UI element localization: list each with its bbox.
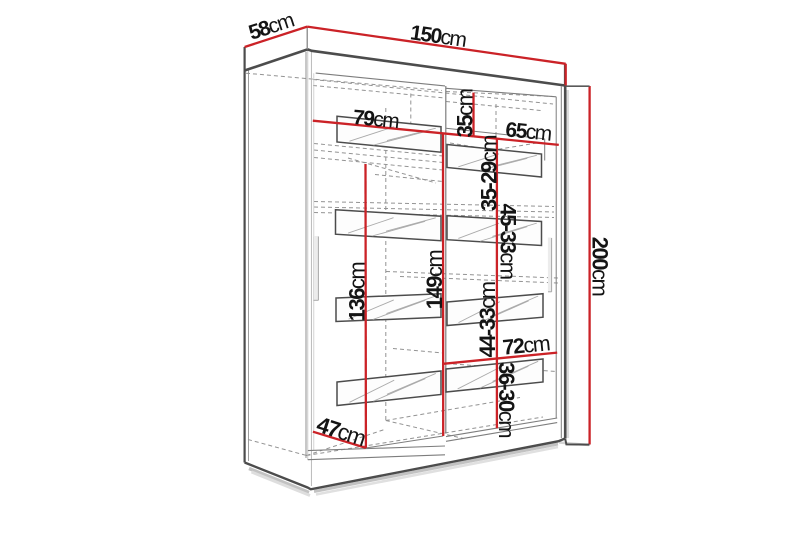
svg-text:47cm: 47cm [314, 412, 369, 451]
svg-text:150cm: 150cm [409, 21, 468, 52]
svg-text:35-29cm: 35-29cm [476, 136, 501, 211]
svg-text:36-30cm: 36-30cm [494, 362, 519, 437]
svg-text:79cm: 79cm [352, 106, 400, 133]
svg-text:149cm: 149cm [422, 251, 447, 310]
svg-text:35cm: 35cm [453, 89, 478, 137]
svg-text:72cm: 72cm [501, 331, 550, 359]
svg-text:200cm: 200cm [587, 237, 612, 296]
svg-text:45-33cm: 45-33cm [496, 203, 521, 278]
svg-text:44-33cm: 44-33cm [475, 282, 500, 357]
svg-text:65cm: 65cm [504, 118, 552, 145]
svg-text:136cm: 136cm [345, 263, 370, 322]
